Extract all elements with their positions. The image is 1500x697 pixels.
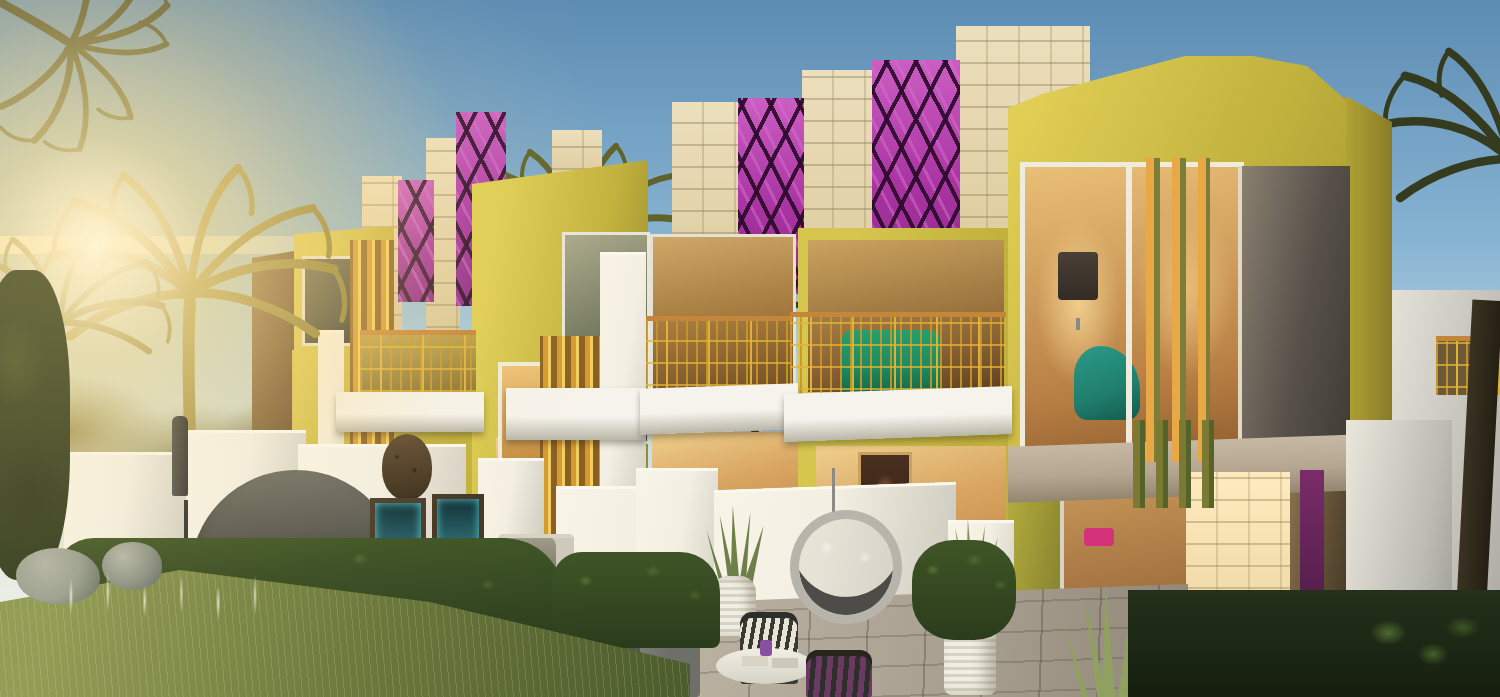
unit-d-balcony-railing	[790, 312, 1006, 397]
rattan-egg-chair	[382, 434, 432, 500]
patio-chair	[806, 650, 872, 697]
unit-e-olive-fins	[1128, 420, 1220, 508]
hedge-row	[552, 552, 720, 648]
pink-accent-decor	[1084, 528, 1114, 546]
round-coffee-table	[716, 648, 814, 697]
hedge-bush	[912, 540, 1016, 640]
floor-lamp	[1058, 252, 1098, 300]
unit-e-corner-panel	[1238, 166, 1350, 462]
left-edge-foliage	[0, 270, 70, 580]
townhouse-rendering	[0, 0, 1500, 697]
ornamental-grasses	[48, 556, 278, 646]
swing-chair-rod	[832, 468, 835, 514]
unit-b-balcony-slab	[506, 388, 646, 440]
bedroom-window-mullion	[1126, 162, 1132, 462]
table-books	[742, 656, 768, 666]
unit-d-balcony-slab	[784, 386, 1012, 442]
unit-c-balcony-railing	[646, 316, 792, 393]
unit-e-glass-fins	[1140, 158, 1210, 462]
foreground-foliage-right	[1128, 590, 1500, 697]
purple-vase	[760, 640, 772, 656]
unit-c-balcony-slab	[640, 383, 798, 435]
snakeskin-panel	[398, 180, 434, 302]
metal-ring-swing-chair	[790, 510, 902, 624]
closed-patio-umbrella	[172, 416, 188, 496]
